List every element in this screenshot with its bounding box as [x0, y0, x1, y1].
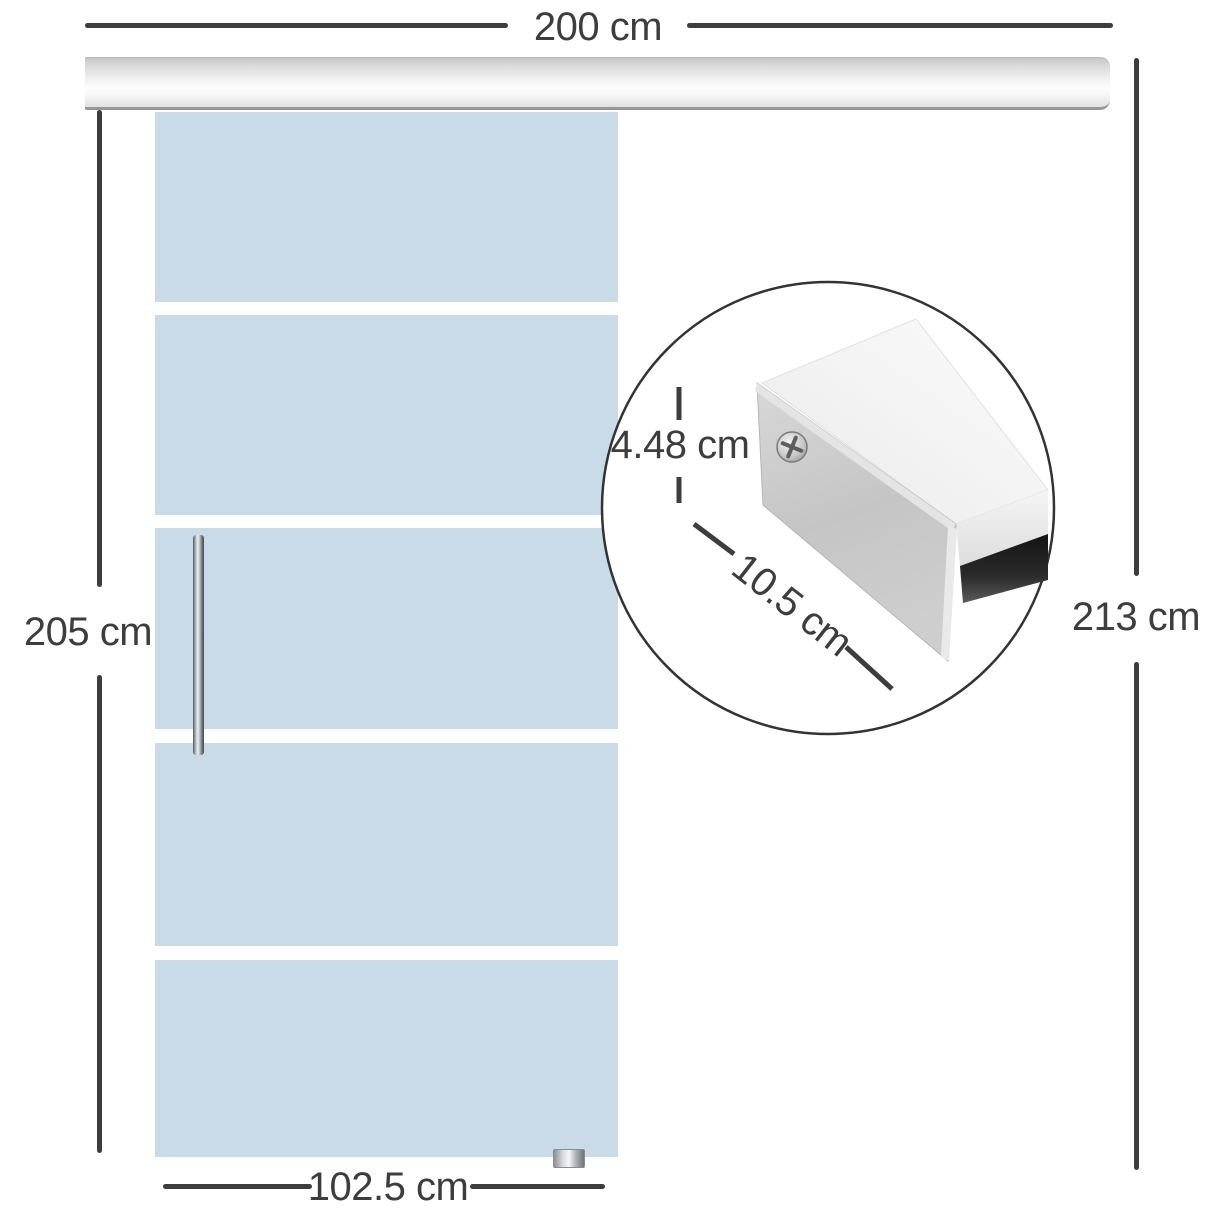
label-track-width: 200 cm [534, 7, 662, 47]
detail-inset [0, 0, 1214, 1214]
label-door-height: 205 cm [24, 612, 152, 652]
label-door-width: 102.5 cm [308, 1167, 469, 1207]
label-detail-height: 4.48 cm [611, 425, 750, 465]
sliding-door-dimension-diagram: 200 cm 205 cm 213 cm 102.5 cm 4.48 cm 10… [0, 0, 1214, 1214]
label-total-height: 213 cm [1072, 597, 1200, 637]
screw-icon [777, 432, 807, 462]
